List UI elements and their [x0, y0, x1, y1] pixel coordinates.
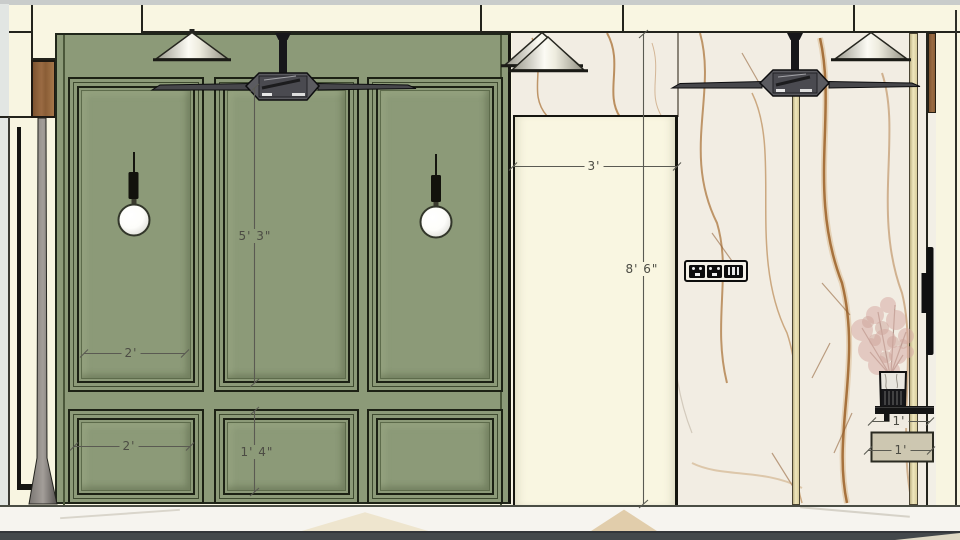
- dimension-lines-layer: [0, 0, 960, 540]
- dimension-label-upper-panel-width: 2': [122, 346, 141, 360]
- dimension-label-shelf-depth: 1': [890, 414, 909, 428]
- dimension-label-lower-panel-width: 2': [120, 439, 139, 453]
- dimension-lines: [70, 30, 935, 508]
- elevation-drawing-viewport[interactable]: 5' 3" 2' 2' 1' 4" 3' 8' 6" 1' 1': [0, 0, 960, 540]
- dimension-label-console-depth: 1': [892, 443, 911, 457]
- dimension-label-opening-width: 3': [585, 159, 604, 173]
- dimension-label-lower-panel-height: 1' 4": [238, 445, 277, 459]
- dimension-label-wall-height: 8' 6": [623, 262, 662, 276]
- dimension-label-upper-panel-height: 5' 3": [236, 229, 275, 243]
